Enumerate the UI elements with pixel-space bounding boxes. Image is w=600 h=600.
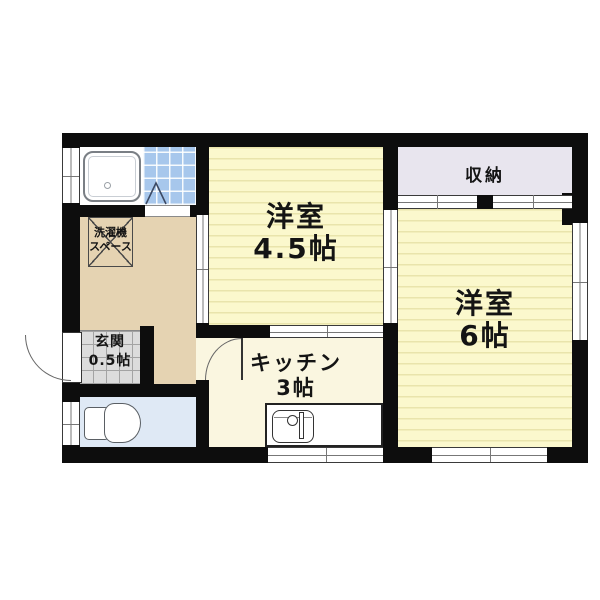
kitchen-label: キッチン 3帖 xyxy=(209,351,383,401)
laundry-space-label: 洗濯機 スペース xyxy=(83,226,138,255)
window-kitchen-bottom xyxy=(268,447,383,463)
storage-door-tick-right xyxy=(533,195,534,209)
window-room-b-right xyxy=(572,223,588,340)
entrance-label: 玄関 0.5帖 xyxy=(80,333,140,371)
window-bathroom-left xyxy=(62,148,80,203)
room-b-label: 洋室 6帖 xyxy=(398,288,572,352)
room-b-name: 洋室 xyxy=(398,288,572,320)
room-a-name: 洋室 xyxy=(209,201,383,233)
room-b-size: 6帖 xyxy=(398,320,572,352)
wall-entrance-right xyxy=(140,326,154,384)
kitchen-name: キッチン xyxy=(209,351,383,376)
storage-door-center-block xyxy=(477,195,493,209)
kitchen-size: 3帖 xyxy=(209,376,383,401)
wall-kitchen-north xyxy=(196,325,270,338)
faucet-icon xyxy=(287,415,298,426)
bathtub-drain-icon xyxy=(104,182,111,189)
window-toilet-left xyxy=(62,402,80,445)
room-a-size: 4.5帖 xyxy=(209,233,383,265)
wall-partition-bottom xyxy=(383,323,398,463)
laundry-line2: スペース xyxy=(83,240,138,254)
storage-door-tick-left xyxy=(437,195,438,209)
room-a-label: 洋室 4.5帖 xyxy=(209,201,383,265)
wall-hall-south xyxy=(62,384,196,397)
bathroom-folding-door-icon xyxy=(143,180,169,206)
laundry-line1: 洗濯機 xyxy=(83,226,138,240)
wall-hall-column-bottom xyxy=(196,380,209,447)
sliding-partition-rooms xyxy=(383,210,398,323)
entrance-name: 玄関 xyxy=(80,333,140,352)
window-room-b-bottom xyxy=(432,447,547,463)
sliding-door-room-a xyxy=(196,215,209,323)
storage-label: 収納 xyxy=(398,161,572,186)
floor-plan: 洋室 4.5帖 洋室 6帖 キッチン 3帖 収納 玄関 0.5帖 洗濯機 スペー… xyxy=(0,0,600,600)
bathroom-door-gap xyxy=(145,205,190,217)
sliding-opening-kitchen-room-a xyxy=(270,325,383,338)
entrance-door-swing-arc xyxy=(25,335,71,381)
bathtub-icon xyxy=(83,151,141,202)
toilet-bowl-icon xyxy=(104,403,141,443)
wall-top xyxy=(62,133,588,147)
faucet-handle-icon xyxy=(299,412,304,439)
entrance-size: 0.5帖 xyxy=(80,352,140,371)
